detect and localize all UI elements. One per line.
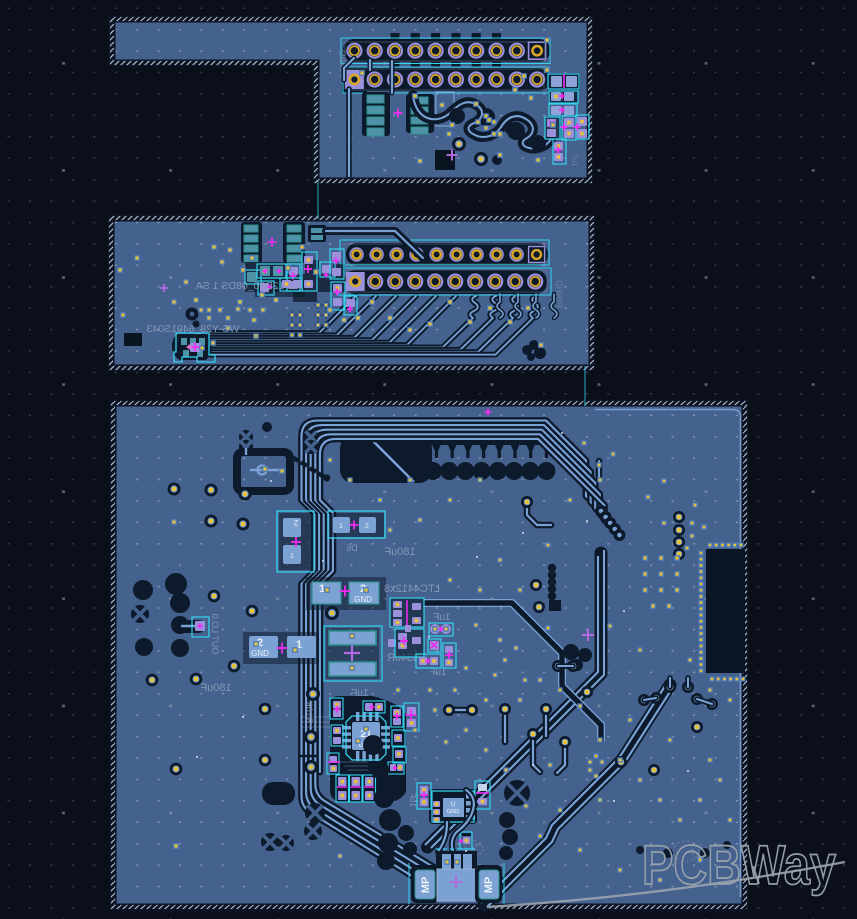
svg-text:GND: GND bbox=[447, 809, 459, 815]
svg-text:GND: GND bbox=[251, 649, 269, 658]
svg-text:1uF: 1uF bbox=[408, 793, 417, 807]
svg-text:WS-Y28_6401S043: WS-Y28_6401S043 bbox=[146, 323, 239, 335]
svg-text:1: 1 bbox=[290, 553, 294, 560]
svg-text:180uF: 180uF bbox=[384, 546, 415, 558]
svg-text:1: 1 bbox=[339, 523, 343, 530]
svg-text:1uF: 1uF bbox=[570, 153, 579, 167]
svg-text:R10K: R10K bbox=[304, 701, 314, 724]
svg-text:PCBWay: PCBWay bbox=[642, 833, 836, 896]
svg-text:PINHD: PINHD bbox=[554, 280, 564, 309]
svg-text:OUT LO.0: OUT LO.0 bbox=[210, 614, 220, 655]
svg-text:MP: MP bbox=[420, 877, 432, 894]
svg-text:A2 12D80_08DS 1 SA: A2 12D80_08DS 1 SA bbox=[196, 280, 301, 292]
svg-text:D6: D6 bbox=[346, 543, 358, 553]
svg-text:MP: MP bbox=[483, 877, 495, 894]
svg-text:GND: GND bbox=[354, 595, 372, 604]
svg-text:180uF: 180uF bbox=[200, 682, 231, 694]
svg-text:LTC4412x8: LTC4412x8 bbox=[384, 583, 440, 595]
svg-text:U: U bbox=[451, 802, 455, 808]
svg-text:1uF: 1uF bbox=[433, 612, 450, 623]
svg-text:2: 2 bbox=[293, 518, 298, 527]
svg-text:1uF: 1uF bbox=[429, 667, 446, 678]
svg-text:2: 2 bbox=[365, 523, 369, 530]
